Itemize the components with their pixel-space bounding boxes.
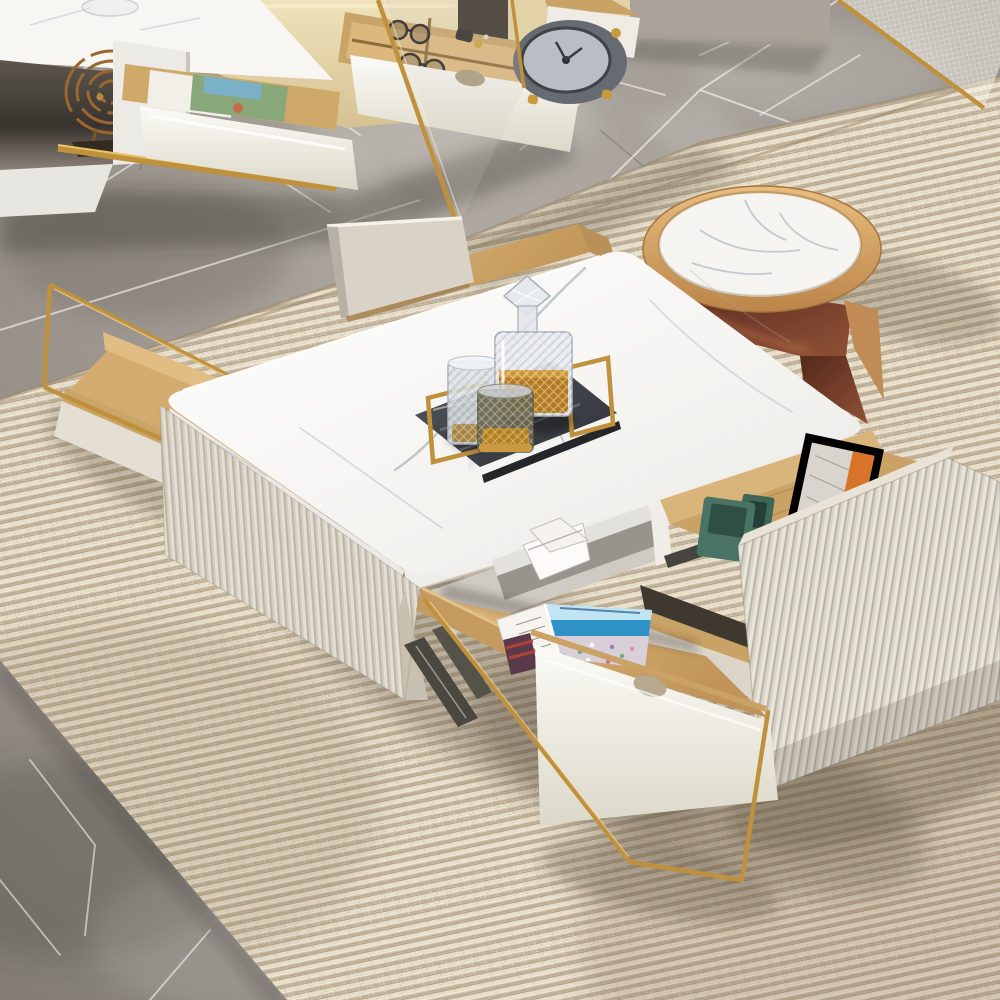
- organizer-front-hole: [707, 503, 747, 538]
- art-print-accent: [233, 103, 243, 113]
- whiskey-glass-front: [478, 384, 533, 452]
- maze-ball: [97, 94, 104, 101]
- cabinet-bottom-face: [0, 164, 113, 217]
- scene-svg: [0, 0, 1000, 1000]
- product-photo: [0, 0, 1000, 1000]
- clock-knob: [611, 28, 621, 38]
- glass-bowl: [82, 0, 138, 16]
- gold-base-band: [479, 444, 532, 452]
